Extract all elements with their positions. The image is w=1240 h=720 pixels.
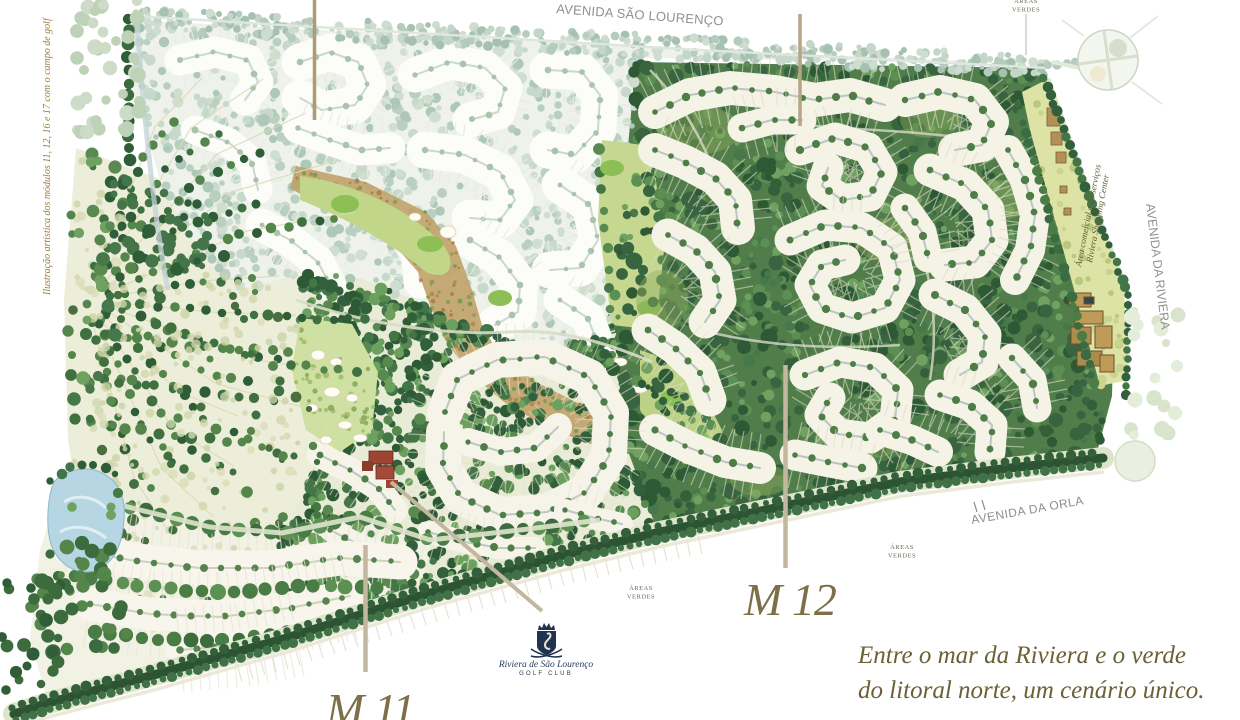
svg-text:do litoral norte, um cenário ú: do litoral norte, um cenário único. [858,677,1205,704]
svg-text:M 12: M 12 [743,574,836,625]
svg-text:Entre o mar da Riviera e o ver: Entre o mar da Riviera e o verde [857,642,1186,669]
svg-text:M 11: M 11 [325,684,414,720]
svg-text:Ilustração artística dos módul: Ilustração artística dos módulos 11, 12,… [42,17,53,296]
svg-text:ÁREASVERDES: ÁREASVERDES [1012,0,1040,14]
svg-text:Riviera de São Lourenço: Riviera de São Lourenço [498,660,594,670]
svg-text:GOLF CLUB: GOLF CLUB [519,671,573,677]
